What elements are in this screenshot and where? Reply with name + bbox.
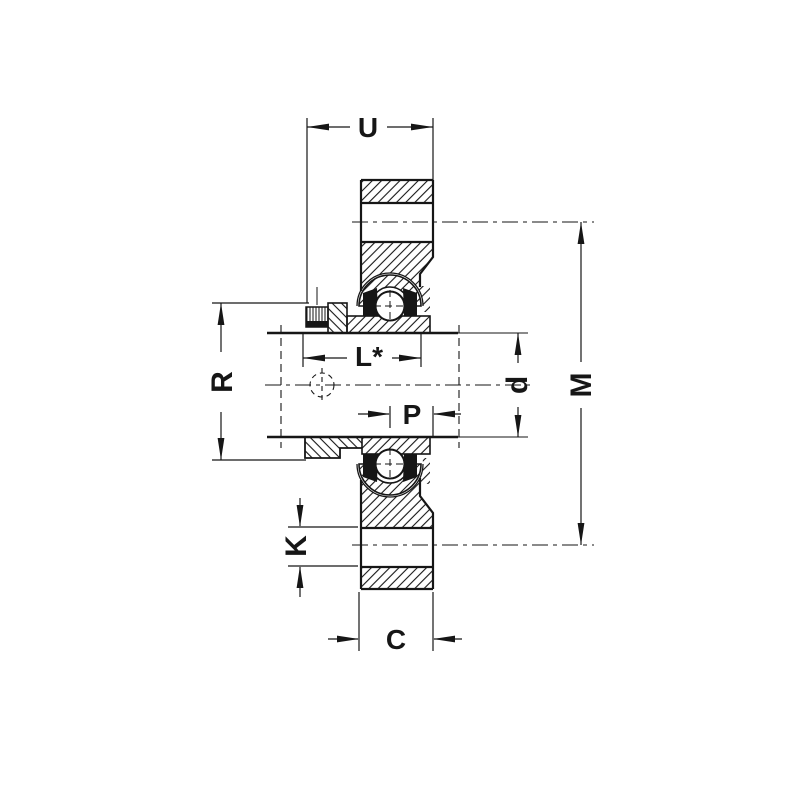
drawing-page: U L* P C R K d M: [0, 0, 800, 800]
shaft: [267, 325, 528, 448]
dim-label-d: d: [501, 376, 534, 394]
dim-label-k: K: [280, 535, 313, 557]
bearing-unit-technical-drawing: U L* P C R K d M: [0, 0, 800, 800]
upper-locking-collar: [328, 303, 347, 333]
dim-label-l: L*: [355, 341, 383, 372]
set-screw: [306, 287, 328, 327]
lower-locking-collar: [305, 437, 362, 458]
dim-label-c: C: [386, 624, 406, 655]
upper-flange-outer-band: [361, 180, 433, 203]
centerlines: [265, 222, 594, 545]
dim-label-p: P: [403, 399, 422, 430]
dim-label-r: R: [206, 371, 239, 393]
dim-label-u: U: [358, 112, 378, 143]
dim-label-m: M: [565, 373, 598, 398]
lower-flange-outer-band: [361, 567, 433, 589]
